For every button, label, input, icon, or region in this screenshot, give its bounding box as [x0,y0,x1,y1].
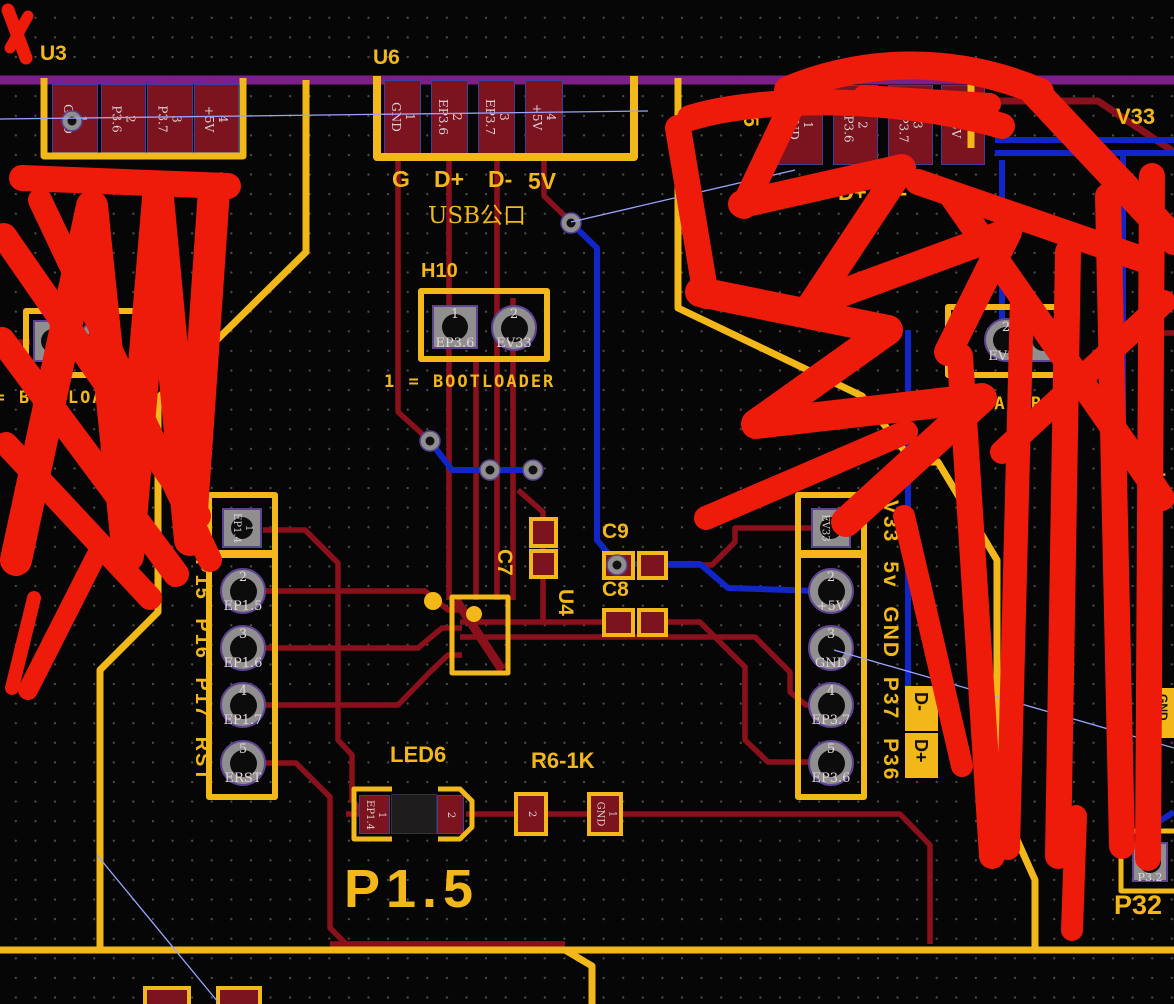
u4-pin1-markers [424,592,482,622]
u3-pin-dminus: D- [152,168,175,194]
hleft-pad-2[interactable]: 2 EV33 [78,319,122,363]
right-header-pin3[interactable]: 3 GND [808,625,854,671]
h10-pad-1[interactable]: 1 EP3.6 [432,305,478,349]
u6-pad-2-label: 2 EP3.6 [436,99,464,135]
u5-pin-dplus: D+ [838,180,867,206]
u3-pad-3[interactable]: 3 P3.7 [147,84,193,153]
u5-refdes: U5 [738,100,762,127]
bootloader-note-right: 1 = BOOTLOADER [872,394,1043,414]
right-header-pin5[interactable]: 5 EP3.6 [808,740,854,786]
board-outline [0,78,1174,1004]
r6-pad-2[interactable]: 2 [514,792,548,836]
c-partial-label: C [1140,430,1155,454]
dminus-tag: D- [905,686,938,731]
u6-pin-g: G [392,166,410,193]
right-header-pin2[interactable]: 2 +5V [808,568,854,614]
u6-pad-3-label: 3 EP3.7 [483,99,511,135]
r6-pad-1[interactable]: 1 GND [587,792,623,836]
right-header-pin1[interactable]: 1 EV33 [811,508,851,548]
h10-pad-2-hole [501,315,528,342]
u6-refdes: U6 [373,46,400,70]
led6-pad-1-label: 1 EP1.4 [363,800,387,830]
left-header-pin4[interactable]: 4 EP1.7 [220,682,266,728]
u5-pad-3[interactable]: 3 PP3.7 [888,85,933,165]
u3-pad-4[interactable]: 4 +5V [194,84,239,153]
v33-label: V33 [1116,104,1155,130]
left-header-pin2[interactable]: 2 EP1.5 [220,568,266,614]
u6-pin-5v: 5V [528,168,556,195]
u3-pin-dplus: D+ [104,168,133,194]
hright-pad-1[interactable] [1024,318,1062,362]
u6-pad-4-label: 4 +5V [530,104,558,130]
c8-refdes: C8 [602,578,629,602]
u5-pin-g: G [786,180,803,206]
u4-refdes: U4 [553,589,577,616]
u6-pad-2[interactable]: 2 EP3.6 [431,80,468,154]
right-header-pin4[interactable]: 4 EP3.7 [808,682,854,728]
u6-pad-3[interactable]: 3 EP3.7 [478,80,515,154]
left-header-pin3[interactable]: 3 EP1.6 [220,625,266,671]
h10-pad-1-hole [442,314,468,340]
led6-pad-1[interactable]: 1 EP1.4 [359,795,390,834]
c9-pad-2[interactable] [637,551,668,580]
led6-body[interactable] [391,794,437,834]
u3-refdes: U3 [40,42,67,66]
c7-refdes: C7 [492,549,516,576]
c7-pad-2[interactable] [529,549,558,579]
bottom-pad-1[interactable] [143,986,191,1004]
p15-net-label: P1.5 [344,858,479,920]
left-header-pin1-label: 1 EP1.4 [230,513,254,543]
r6-refdes: R6-1K [531,748,595,774]
u5-pad-2-label: 2 PP3.6 [841,107,869,142]
r6-pad-1-label: 1 GND [593,802,617,827]
c8-pad-1[interactable] [602,608,635,637]
dplus-tag-text: D+ [910,739,931,763]
h10-refdes: H10 [421,260,458,283]
c5-label: C5 [1140,470,1167,494]
p32-pad[interactable]: 1 P3.2 [1132,842,1168,882]
u3-pad-1-label: 1 GND [61,104,89,134]
u5-pad-4-label: 4 +5V [949,112,977,138]
u6-pad-1[interactable]: 1 GND [384,80,421,154]
ratsnest-lines [0,111,1174,1002]
u3-pad-1[interactable]: 1 GND [52,84,98,153]
right-header-pin1-label: 1 EV33 [819,514,843,541]
u3-pad-2[interactable]: 2 P3.6 [101,84,146,153]
c8-pad-2[interactable] [637,608,668,637]
u5-pin-dminus: D- [884,180,907,206]
p32-label: P32 [1114,890,1162,921]
led6-pad-2[interactable]: 2 [437,795,464,834]
u5-pin-5v: 5V [936,180,963,206]
bootloader-note-center: 1 = BOOTLOADER [384,372,555,392]
c9-refdes: C9 [602,520,629,544]
u5-pad-1[interactable]: 1 GND [778,85,823,165]
left-header-pin1[interactable]: 1 EP1.4 [222,508,262,548]
u6-pad-1-label: 1 GND [389,102,417,132]
u6-pin-dplus: D+ [434,166,464,193]
bootloader-note-left: 1 = BOOTLOADER [0,388,141,408]
h10-pad-2[interactable]: 2 EV33 [491,305,537,351]
u6-pin-dminus: D- [488,166,512,193]
dminus-tag-text: D- [910,692,931,711]
pcb-canvas[interactable]: 1 GND 2 P3.6 3 P3.7 4 +5V 1 GND 2 EP3.6 … [0,0,1174,1004]
u5-pad-4[interactable]: 4 +5V [941,85,985,165]
left-header-silk: P14 P15 P16 P17 RST [190,500,213,783]
hleft-pad-1[interactable] [33,320,73,362]
right-header-silk: V33 5v GND P37 P36 [878,500,902,781]
u3-pad-3-label: 3 P3.7 [156,105,184,132]
gnd-tag-text: GND [1156,694,1170,721]
led6-pad-2-label: 2 [445,811,457,817]
u5-pad-1-label: 1 GND [787,110,815,140]
u3-pin-g: G [62,168,79,194]
hright-pad-2[interactable]: 2 EV33 [984,318,1028,362]
bottom-pad-2[interactable] [216,986,262,1004]
r6-pad-2-label: 2 [525,811,537,817]
c9-pad-1[interactable] [602,551,635,580]
dplus-tag: D+ [905,733,938,778]
u3-pad-2-label: 2 P3.6 [109,105,137,132]
c7-pad-1[interactable] [529,517,558,548]
u6-pad-4[interactable]: 4 +5V [525,80,563,154]
blue-traces[interactable] [430,140,1174,836]
led6-refdes: LED6 [390,742,446,768]
u3-pad-4-label: 4 +5V [202,105,230,131]
left-header-pin5[interactable]: 5 ERST [220,740,266,786]
u5-pad-3-label: 3 PP3.7 [896,107,924,142]
u3-pin-5v: 5V [196,168,223,194]
gnd-tag: GND [1152,688,1174,738]
u5-pad-2[interactable]: 2 PP3.6 [833,85,878,165]
u6-caption: USB公口 [428,196,526,230]
